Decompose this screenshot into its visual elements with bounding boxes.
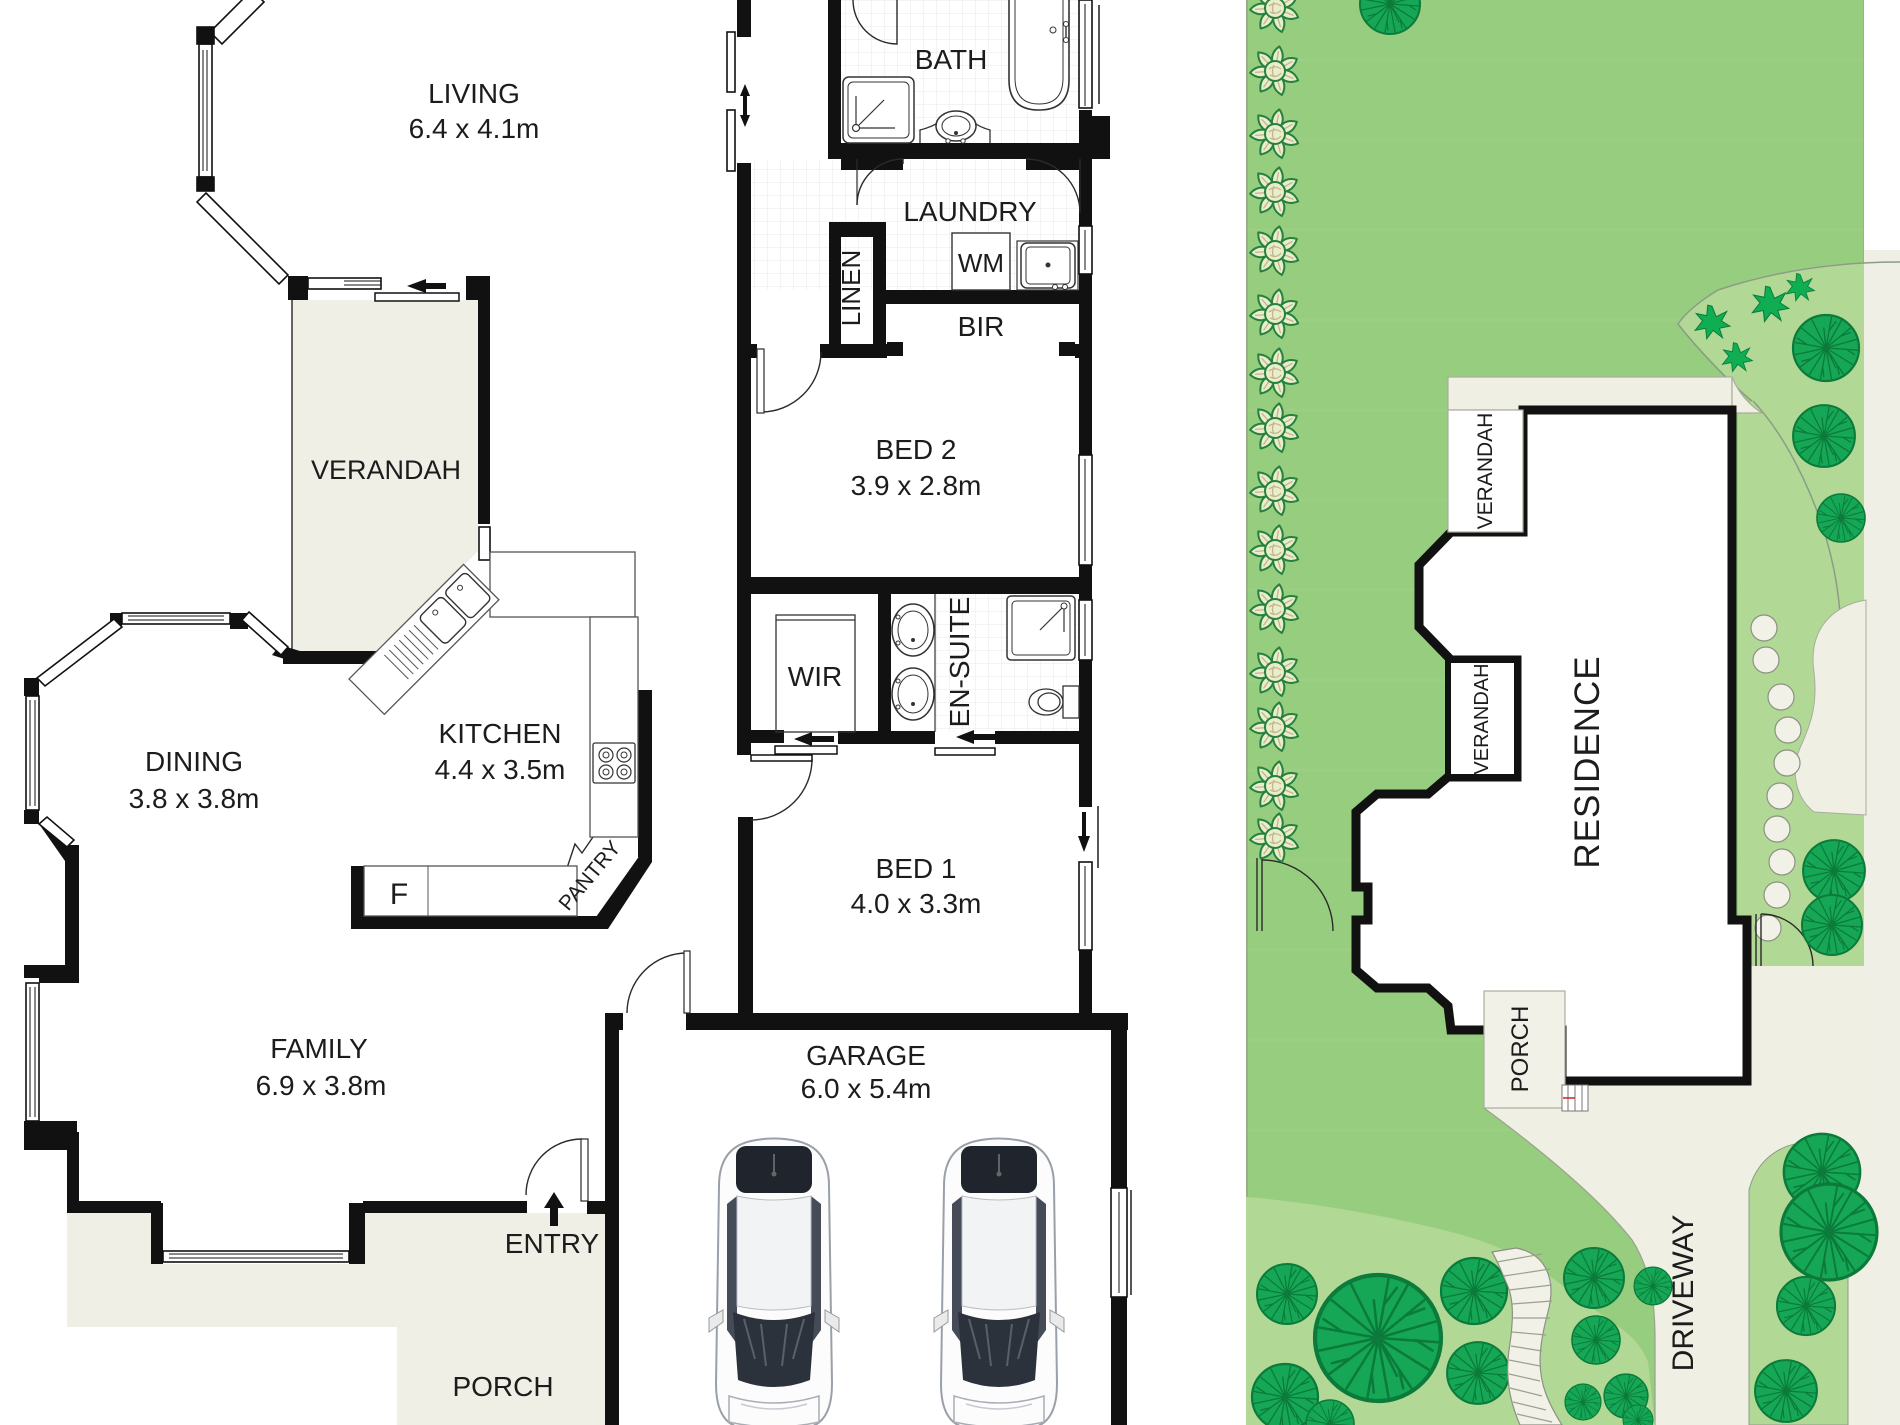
svg-text:DRIVEWAY: DRIVEWAY — [1667, 1215, 1700, 1372]
svg-text:3.8 x 3.8m: 3.8 x 3.8m — [129, 783, 260, 814]
svg-text:F: F — [390, 878, 408, 911]
svg-text:ENTRY: ENTRY — [505, 1228, 600, 1259]
svg-text:DINING: DINING — [145, 746, 243, 777]
svg-text:BIR: BIR — [958, 311, 1005, 342]
svg-text:WIR: WIR — [788, 661, 842, 692]
svg-text:LIVING: LIVING — [428, 78, 520, 109]
svg-text:4.4 x 3.5m: 4.4 x 3.5m — [435, 754, 566, 785]
svg-text:VERANDAH: VERANDAH — [1474, 413, 1497, 530]
svg-text:6.9 x 3.8m: 6.9 x 3.8m — [256, 1070, 387, 1101]
svg-text:BED 2: BED 2 — [876, 434, 957, 465]
svg-text:6.0 x 5.4m: 6.0 x 5.4m — [801, 1073, 932, 1104]
svg-text:4.0 x 3.3m: 4.0 x 3.3m — [851, 888, 982, 919]
svg-text:BED 1: BED 1 — [876, 853, 957, 884]
svg-text:PORCH: PORCH — [452, 1371, 553, 1402]
svg-text:KITCHEN: KITCHEN — [439, 718, 562, 749]
svg-text:BATH: BATH — [915, 44, 988, 75]
svg-text:FAMILY: FAMILY — [270, 1033, 368, 1064]
svg-text:3.9 x 2.8m: 3.9 x 2.8m — [851, 470, 982, 501]
svg-text:RESIDENCE: RESIDENCE — [1568, 655, 1607, 868]
svg-text:WM: WM — [958, 248, 1004, 278]
svg-text:VERANDAH: VERANDAH — [311, 455, 461, 485]
svg-text:PORCH: PORCH — [1507, 1006, 1534, 1093]
svg-text:LAUNDRY: LAUNDRY — [903, 196, 1037, 227]
svg-text:VERANDAH: VERANDAH — [1471, 663, 1493, 774]
svg-text:EN-SUITE: EN-SUITE — [944, 597, 975, 728]
svg-text:GARAGE: GARAGE — [806, 1040, 926, 1071]
svg-text:6.4 x 4.1m: 6.4 x 4.1m — [409, 113, 540, 144]
svg-text:LINEN: LINEN — [836, 250, 866, 327]
